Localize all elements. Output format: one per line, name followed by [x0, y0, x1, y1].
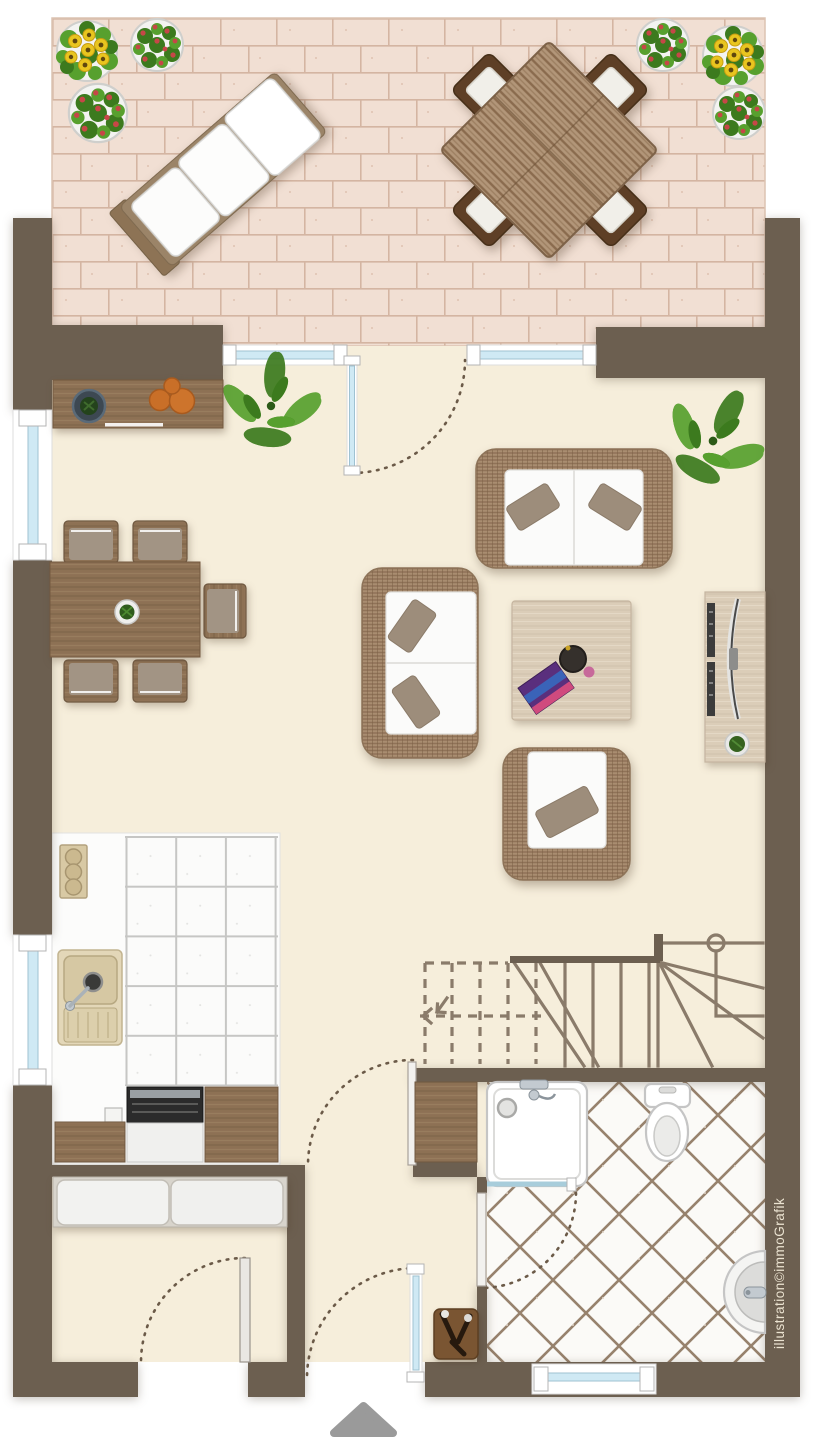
kitchen-tiles	[125, 836, 278, 1086]
sideboard	[53, 378, 223, 428]
sunflower-pot	[702, 26, 764, 86]
bath-cabinet	[415, 1082, 477, 1162]
terrace-window-right	[467, 345, 596, 365]
speaker	[707, 662, 715, 716]
red-flower-pot	[713, 87, 765, 139]
window-dining	[13, 410, 52, 560]
toilet	[645, 1084, 690, 1161]
wood-cabinet	[205, 1087, 278, 1162]
outdoor-dining-set	[440, 41, 658, 259]
coat-stand	[434, 1309, 478, 1359]
red-flower-pot	[131, 19, 183, 71]
dining-chair	[64, 660, 118, 702]
loveseat-sofa	[476, 449, 672, 568]
red-flower-pot	[637, 19, 689, 71]
window-kitchen	[13, 935, 52, 1085]
wood-cabinet	[55, 1122, 125, 1162]
shower	[487, 1080, 587, 1191]
armchair	[503, 748, 630, 880]
dining-chair	[133, 660, 187, 702]
credit-watermark: illustration©immoGrafik	[772, 1198, 787, 1349]
dishwasher	[127, 1087, 203, 1162]
dining-chair	[204, 584, 246, 638]
speaker	[707, 603, 715, 657]
window-bathroom	[532, 1364, 656, 1394]
floor-plan: illustration©immoGrafik	[0, 0, 818, 1440]
dining-chair	[64, 521, 118, 563]
coffee-table	[512, 601, 631, 720]
red-flower-pot	[69, 84, 127, 142]
kitchen-sink	[58, 950, 122, 1045]
sunflower-pot	[56, 21, 118, 81]
cooktop	[60, 845, 87, 898]
two-seat-sofa	[362, 568, 478, 758]
tv-sideboard	[705, 592, 765, 762]
terrace-window-left	[223, 345, 347, 365]
dining-chair	[133, 521, 187, 563]
wardrobe	[53, 1177, 287, 1227]
teapot	[560, 646, 586, 672]
